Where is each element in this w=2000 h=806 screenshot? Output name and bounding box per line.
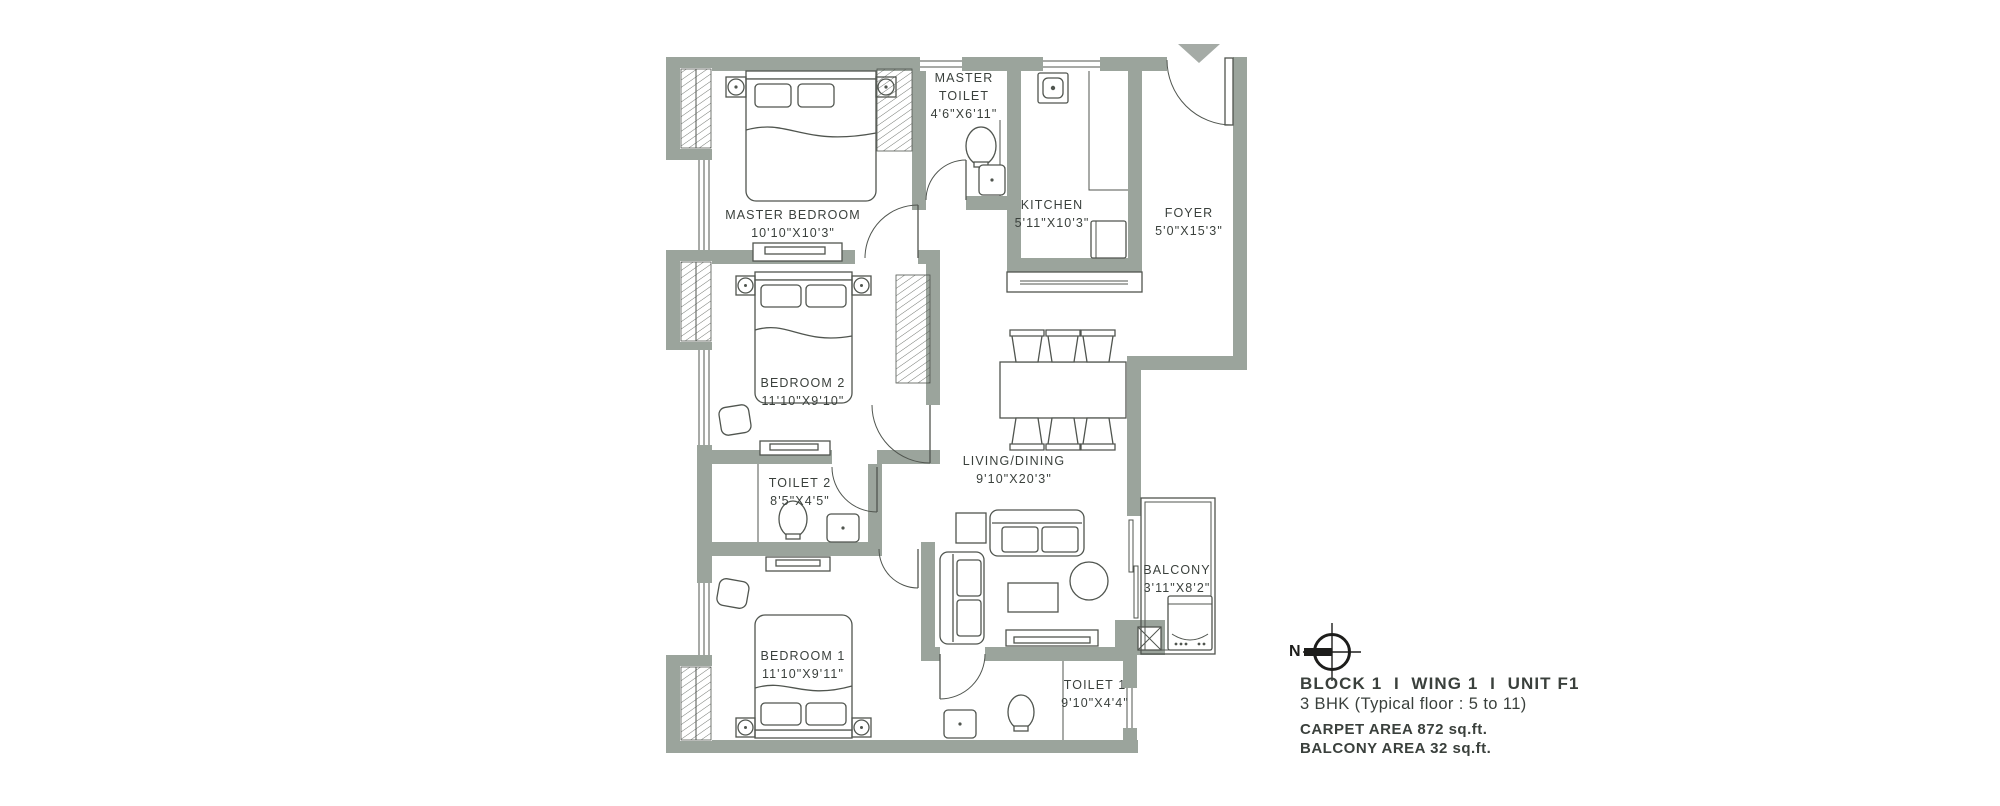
room-label-toilet2: TOILET 2 8'5"X4'5" (769, 474, 832, 510)
room-dims: 8'5"X4'5" (769, 492, 832, 510)
room-dims: 5'11"X10'3" (1015, 214, 1090, 232)
master-bed (726, 71, 896, 201)
room-label-master-toilet: MASTER TOILET 4'6"X6'11" (921, 69, 1007, 123)
washing-machine (1168, 596, 1212, 650)
room-dims: 10'10"X10'3" (725, 224, 861, 242)
room-name: TOILET 1 (1061, 676, 1129, 694)
room-dims: 5'0"X15'3" (1155, 222, 1223, 240)
room-label-bedroom1: BEDROOM 1 11'10"X9'11" (761, 647, 846, 683)
balcony-area-line: BALCONY AREA 32 sq.ft. (1300, 740, 1491, 757)
north-label: N (1289, 643, 1301, 661)
room-name: BEDROOM 1 (761, 647, 846, 665)
carpet-area-line: CARPET AREA 872 sq.ft. (1300, 721, 1487, 738)
sofa-set (940, 510, 1108, 646)
room-dims: 11'10"X9'10" (761, 392, 846, 410)
room-dims: 9'10"X4'4" (1061, 694, 1129, 712)
room-name: BEDROOM 2 (761, 374, 846, 392)
master-dresser (753, 243, 842, 261)
unit-type-line: 3 BHK (Typical floor : 5 to 11) (1300, 695, 1527, 714)
room-name: MASTER TOILET (921, 69, 1007, 105)
room-name: LIVING/DINING (963, 452, 1066, 470)
room-label-foyer: FOYER 5'0"X15'3" (1155, 204, 1223, 240)
dining-set (1000, 330, 1126, 450)
room-label-kitchen: KITCHEN 5'11"X10'3" (1015, 196, 1090, 232)
room-name: BALCONY (1143, 561, 1210, 579)
bedroom1-furniture (716, 557, 830, 609)
room-name: MASTER BEDROOM (725, 206, 861, 224)
room-label-toilet1: TOILET 1 9'10"X4'4" (1061, 676, 1129, 712)
room-dims: 3'11"X8'2" (1143, 579, 1210, 597)
room-name: KITCHEN (1015, 196, 1090, 214)
room-label-living-dining: LIVING/DINING 9'10"X20'3" (963, 452, 1066, 488)
entry-marker-icon (1178, 44, 1220, 63)
room-dims: 4'6"X6'11" (921, 105, 1007, 123)
compass-icon (1303, 623, 1361, 681)
unit-block-line: BLOCK 1 I WING 1 I UNIT F1 (1300, 674, 1580, 694)
bedroom2-furniture (718, 404, 830, 455)
room-dims: 9'10"X20'3" (963, 470, 1066, 488)
room-label-balcony: BALCONY 3'11"X8'2" (1143, 561, 1210, 597)
room-label-bedroom2: BEDROOM 2 11'10"X9'10" (761, 374, 846, 410)
room-name: FOYER (1155, 204, 1223, 222)
room-name: TOILET 2 (769, 474, 832, 492)
master-toilet-fixtures (966, 120, 1005, 196)
toilet1-fixtures (944, 661, 1063, 740)
room-label-master-bedroom: MASTER BEDROOM 10'10"X10'3" (725, 206, 861, 242)
room-dims: 11'10"X9'11" (761, 665, 846, 683)
floorplan-canvas: MASTER BEDROOM 10'10"X10'3" MASTER TOILE… (0, 0, 2000, 806)
